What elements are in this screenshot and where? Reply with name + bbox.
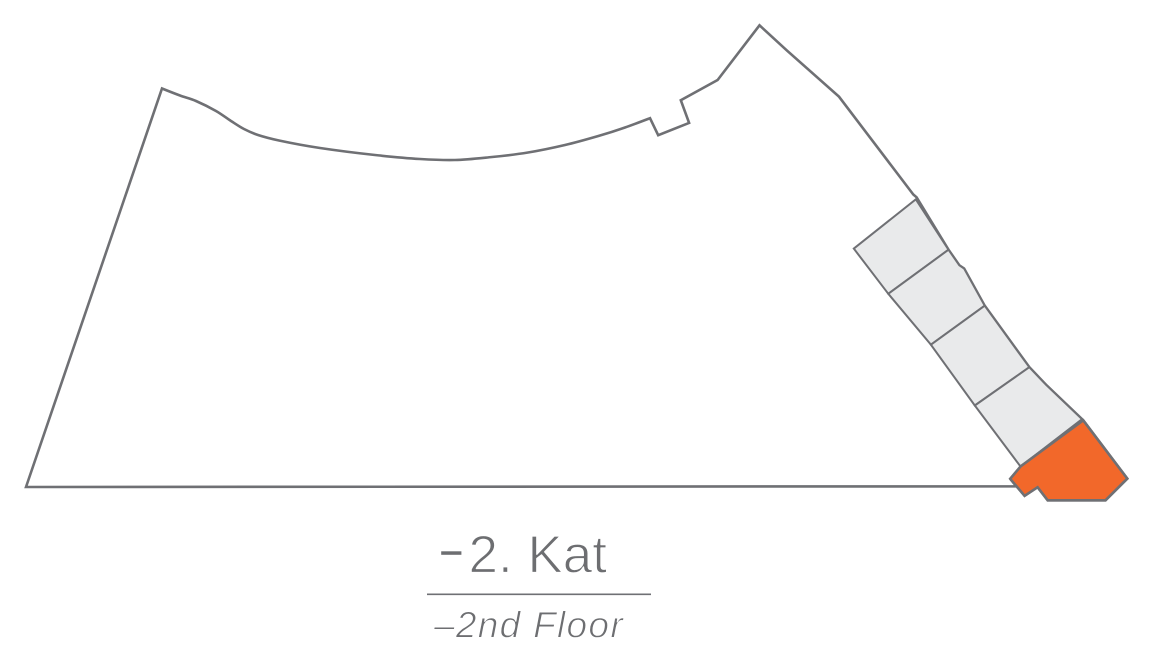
svg-text:2. Kat: 2. Kat	[469, 526, 608, 585]
svg-text:–2nd Floor: –2nd Floor	[433, 604, 624, 645]
